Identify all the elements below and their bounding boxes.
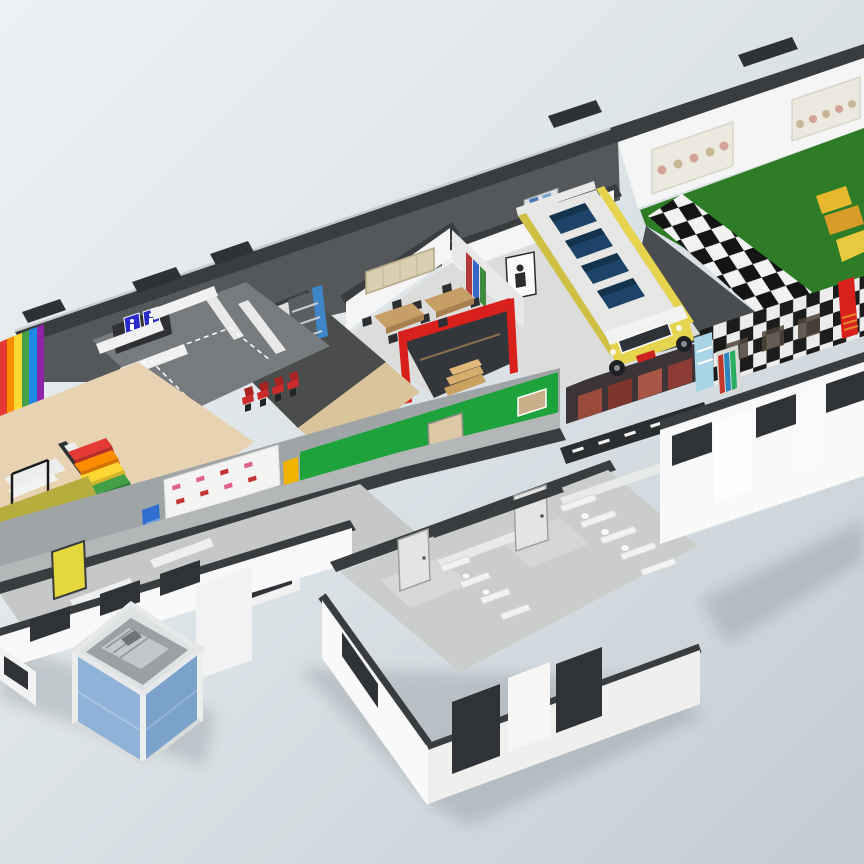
sliding-panel [798,386,822,470]
poster-icon [809,115,817,123]
poster-icon [674,160,683,169]
toilet [462,573,470,579]
poster-icon [706,148,715,157]
bus-wheel-hub [681,341,687,347]
door-handle [422,556,426,560]
yellow-door [52,541,86,599]
cyan-banner [694,332,714,392]
door-handle [540,514,544,518]
poster-icon [835,105,843,113]
poster-icon [796,120,804,128]
annex-door-2 [398,529,430,591]
poster-icon [658,166,667,175]
bus-headlight [610,349,616,355]
poster-icon [848,100,856,108]
book-rack [716,345,741,396]
poster-icon [690,154,699,163]
toilet [482,589,490,595]
toilet [621,545,630,552]
sign-figure-body [515,272,526,288]
sign-glyph [130,319,134,323]
sliding-panel [714,410,752,504]
lift-back-wall [196,566,252,680]
roof-vent-5 [738,37,798,67]
toilet [581,513,590,520]
sign-glyph [130,324,134,330]
roof-vent-4 [548,100,602,128]
poster-icon [720,142,729,151]
bus-headlight [676,325,682,331]
floorplan-render [0,0,864,864]
toilet [601,529,610,536]
sign-figure-head [517,265,524,272]
shadow-right [700,520,864,644]
bus-wheel-hub [614,365,620,371]
poster-icon [822,110,830,118]
red-chair [242,386,254,412]
